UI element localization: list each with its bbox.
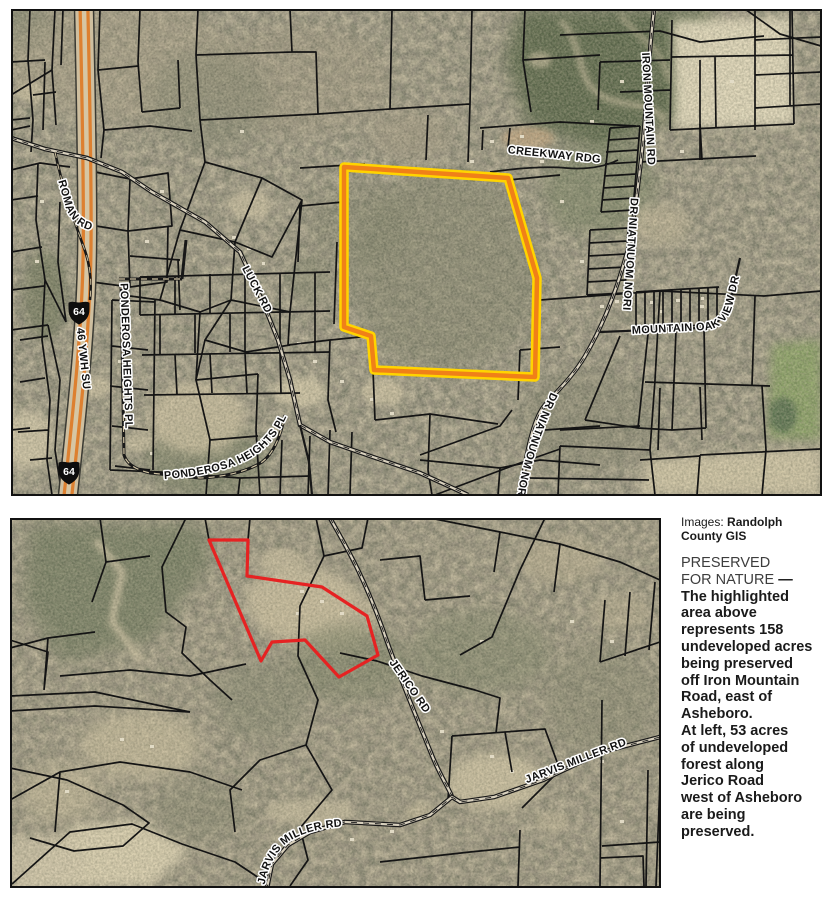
svg-text:64: 64 [73, 306, 85, 318]
svg-text:64: 64 [63, 466, 75, 478]
